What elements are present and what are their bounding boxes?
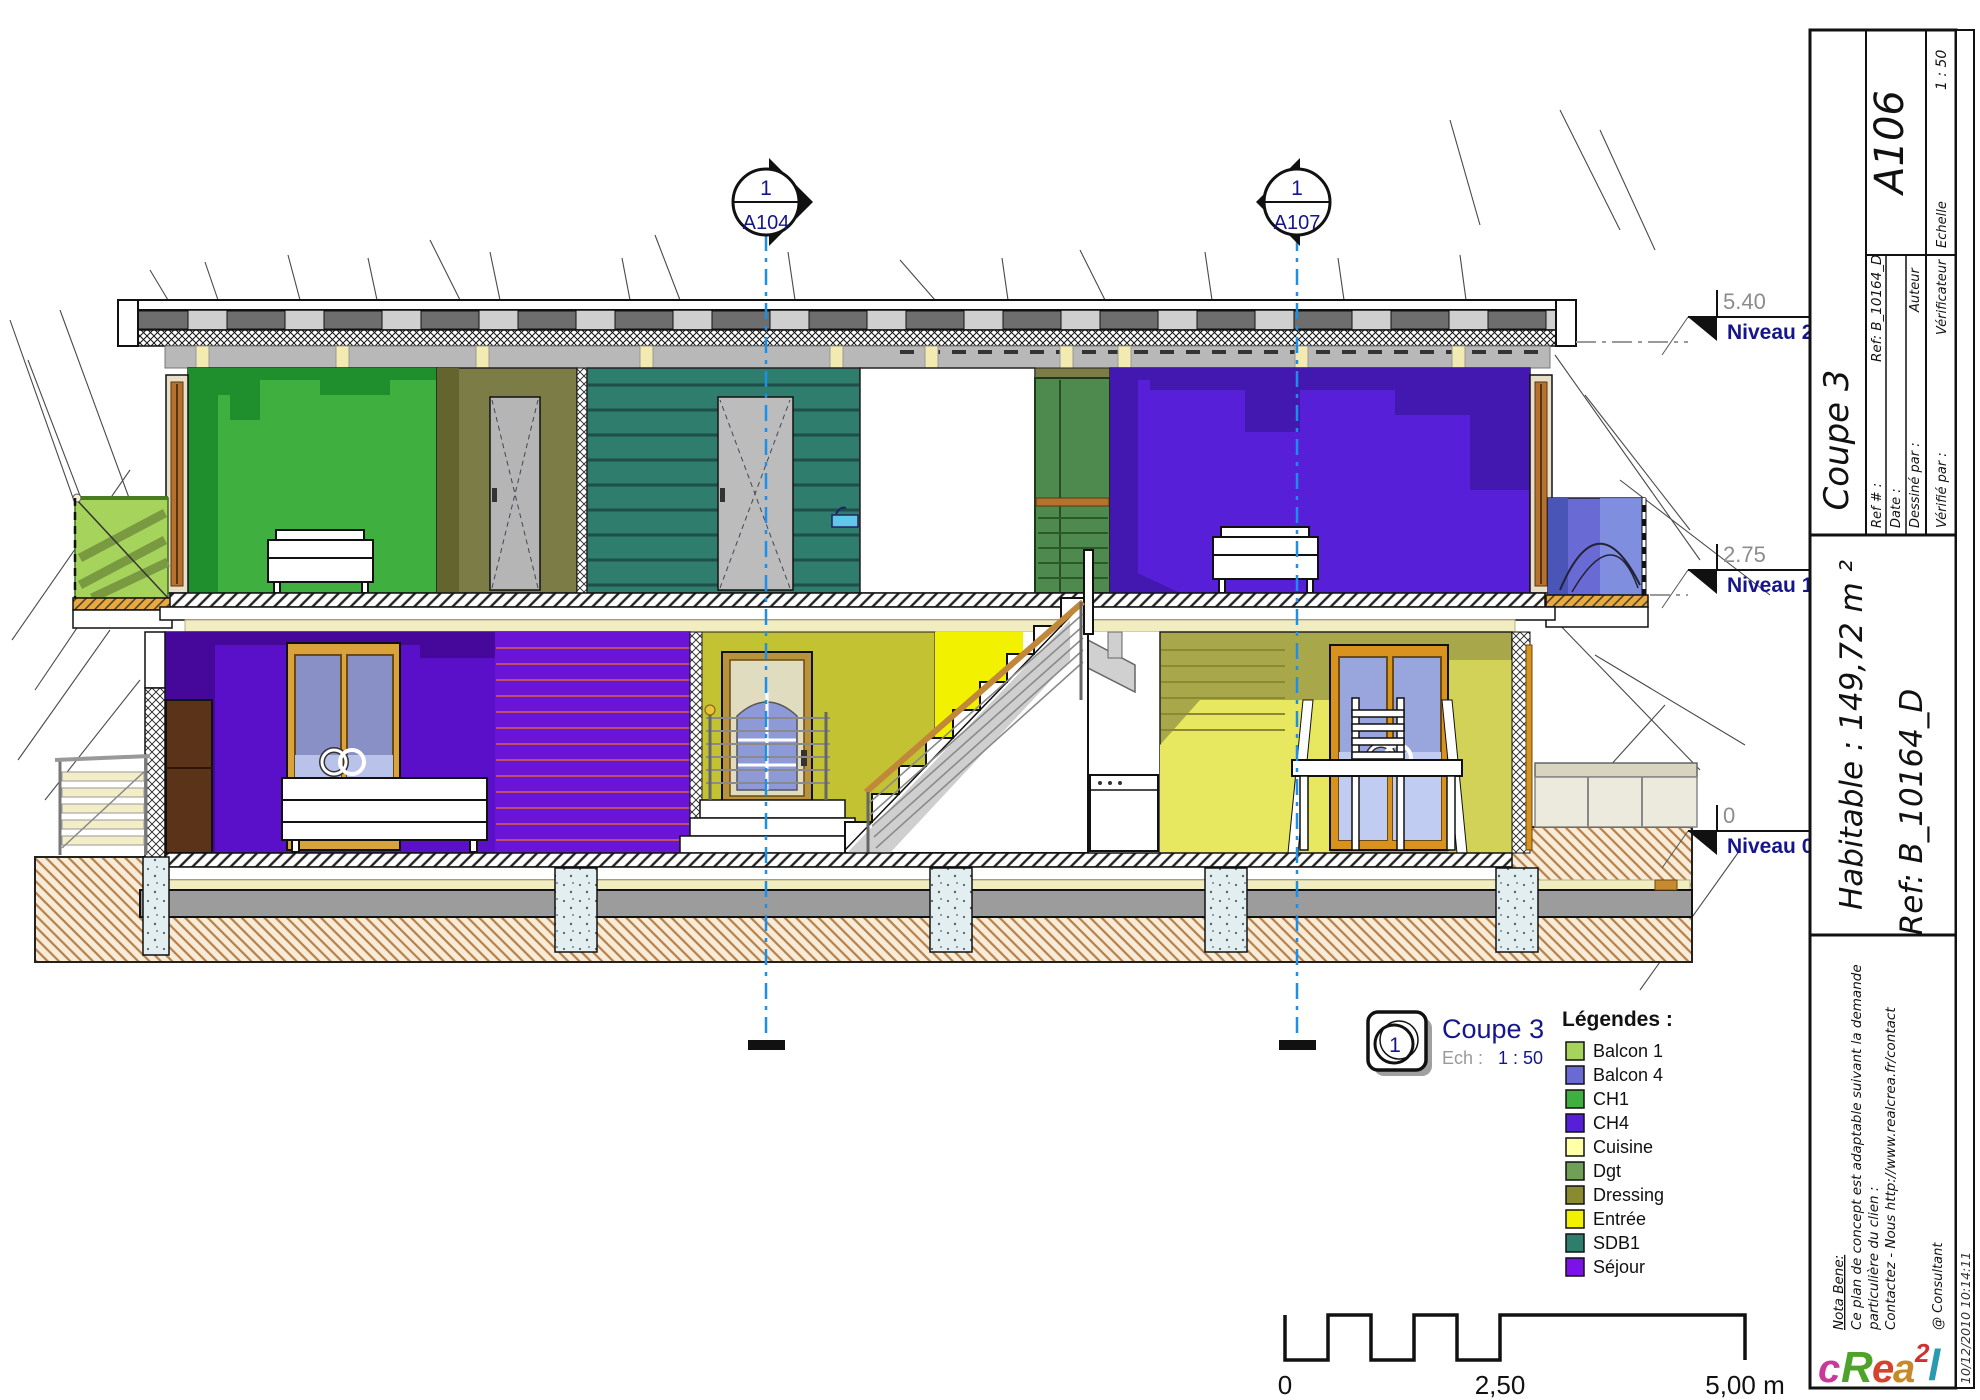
stairwell-upper [860, 368, 1035, 593]
marker-sheet: A107 [1274, 212, 1321, 234]
legend-label: Cuisine [1593, 1137, 1653, 1157]
legend-swatch [1566, 1090, 1584, 1108]
legend-item: Entrée [1566, 1209, 1646, 1229]
foundation-pier [1496, 868, 1538, 952]
view-number: 1 [1389, 1034, 1401, 1057]
legend-title: Légendes : [1562, 1008, 1673, 1031]
titleblock-view-title: Coupe 3 [1817, 369, 1857, 510]
level-name: Niveau 1 [1727, 574, 1814, 597]
drawn-value: Auteur [1908, 267, 1923, 313]
svg-text:Nota Bene:: Nota Bene: [1831, 1255, 1847, 1330]
legend-swatch [1566, 1066, 1584, 1084]
legend-label: Dgt [1593, 1161, 1621, 1181]
legend-item: Dgt [1566, 1161, 1621, 1181]
legend-label: Balcon 1 [1593, 1041, 1663, 1061]
view-scale-prefix: Ech : [1442, 1048, 1483, 1068]
ref-label: Ref # : [1870, 483, 1885, 528]
roof-insulation-hatch [120, 330, 1576, 346]
svg-text:Contactez - Nous http://www.re: Contactez - Nous http://www.realcrea.fr/… [1883, 1007, 1899, 1330]
foundation-pier [555, 868, 597, 952]
level-elevation: 5.40 [1723, 289, 1766, 314]
legend-item: Cuisine [1566, 1137, 1653, 1157]
scale-bar: 0 2,50 5,00 m [1278, 1315, 1785, 1400]
legend-swatch [1566, 1210, 1584, 1228]
wall-hatch [577, 368, 587, 593]
scale-middle: 2,50 [1475, 1370, 1526, 1400]
marker-number: 1 [1291, 177, 1303, 200]
level-elevation: 2.75 [1723, 542, 1766, 567]
legend-label: SDB1 [1593, 1233, 1640, 1253]
sideboard [282, 778, 487, 852]
section-drawing: 1 A104 1 A107 5.40 Niveau 2 2.75 Niveau … [0, 0, 1980, 1400]
wall-left [145, 632, 165, 688]
entry-steps [680, 800, 865, 853]
section-marker-a104: 1 A104 [733, 158, 813, 246]
roof [118, 300, 1576, 376]
door-sdb1 [718, 397, 793, 590]
checked-value: Vérificateur [1935, 258, 1950, 335]
foundation-pier [930, 868, 972, 952]
legend-swatch [1566, 1258, 1584, 1276]
legend-label: Séjour [1593, 1257, 1645, 1277]
door-dgt [490, 397, 540, 590]
balcony-4 [1546, 498, 1648, 627]
legend-label: Dressing [1593, 1185, 1664, 1205]
consultant: @ Consultant [1931, 1242, 1946, 1330]
legend-swatch [1566, 1114, 1584, 1132]
svg-text:particulière du clien :: particulière du clien : [1866, 1187, 1882, 1331]
svg-text:R: R [1841, 1343, 1873, 1392]
checked-label: Vérifié par : [1935, 452, 1950, 528]
scale-label: Echelle [1935, 201, 1950, 248]
legend-item: SDB1 [1566, 1233, 1640, 1253]
section-marker-a107: 1 A107 [1256, 158, 1330, 246]
legend-label: Balcon 4 [1593, 1065, 1663, 1085]
floor-slab-n1 [160, 593, 1555, 632]
floor-slab-n0 [140, 853, 1692, 917]
french-doors-cuisine [1330, 645, 1448, 850]
legend-item: Balcon 4 [1566, 1065, 1663, 1085]
ref-value: Ref: B_10164_D [1869, 255, 1885, 362]
reference-big: Ref: B_10164_D [1894, 689, 1930, 936]
view-title: Coupe 3 [1442, 1014, 1544, 1044]
date-label: Date : [1889, 488, 1904, 528]
legend: Légendes : Balcon 1 Balcon 4 CH1 CH4 Cui… [1562, 1008, 1673, 1277]
balcony-1 [73, 494, 172, 628]
svg-text:c: c [1818, 1347, 1840, 1391]
upper-floor [166, 368, 1552, 593]
legend-item: Balcon 1 [1566, 1041, 1663, 1061]
foundation-pier [1205, 868, 1247, 952]
sheet-number: A106 [1867, 90, 1913, 197]
marker-sheet: A104 [743, 212, 790, 234]
legend-item: Séjour [1566, 1257, 1645, 1277]
timestamp: 10/12/2010 10:14:11 [1958, 1252, 1973, 1384]
drawn-label: Dessiné par : [1908, 442, 1923, 528]
svg-text:Ce plan de concept est adaptab: Ce plan de concept est adaptable suivant… [1849, 964, 1865, 1330]
scale-value: 1 : 50 [1934, 50, 1950, 90]
legend-item: Dressing [1566, 1185, 1664, 1205]
sheet: 1 A104 1 A107 5.40 Niveau 2 2.75 Niveau … [0, 0, 1980, 1400]
title-block: Coupe 3 A106 1 : 50 Echelle Ref: B_10164… [1810, 30, 1974, 1392]
legend-swatch [1566, 1042, 1584, 1060]
legend-swatch [1566, 1186, 1584, 1204]
svg-text:e: e [1872, 1347, 1894, 1391]
scale-start: 0 [1278, 1370, 1292, 1400]
legend-swatch [1566, 1138, 1584, 1156]
level-marker-niveau2: 5.40 Niveau 2 [1662, 289, 1813, 355]
level-marker-niveau1: 2.75 Niveau 1 [1662, 542, 1814, 608]
legend-swatch [1566, 1234, 1584, 1252]
legend-label: CH4 [1593, 1113, 1629, 1133]
legend-item: CH1 [1566, 1089, 1629, 1109]
habitable-area: Habitable : 149,72 m ² [1834, 560, 1870, 910]
cooker [1090, 775, 1158, 851]
marker-number: 1 [760, 177, 772, 200]
legend-item: CH4 [1566, 1113, 1629, 1133]
svg-text:l: l [1928, 1341, 1941, 1390]
window-ch1 [166, 375, 188, 593]
level-name: Niveau 2 [1727, 321, 1813, 344]
level-name: Niveau 0 [1727, 835, 1813, 858]
view-scale: 1 : 50 [1498, 1048, 1543, 1068]
exterior-left-railing [55, 756, 150, 855]
scale-end: 5,00 m [1705, 1370, 1785, 1400]
dressing-cabinet [1035, 368, 1110, 593]
level-elevation: 0 [1723, 803, 1735, 828]
view-label: 1 Coupe 3 Ech : 1 : 50 [1368, 1012, 1544, 1076]
legend-swatch [1566, 1162, 1584, 1180]
exterior-right-bench [1535, 763, 1697, 827]
legend-label: Entrée [1593, 1209, 1646, 1229]
legend-label: CH1 [1593, 1089, 1629, 1109]
wardrobe [166, 700, 212, 853]
foundation-pier [143, 857, 169, 955]
svg-text:a: a [1893, 1347, 1915, 1391]
